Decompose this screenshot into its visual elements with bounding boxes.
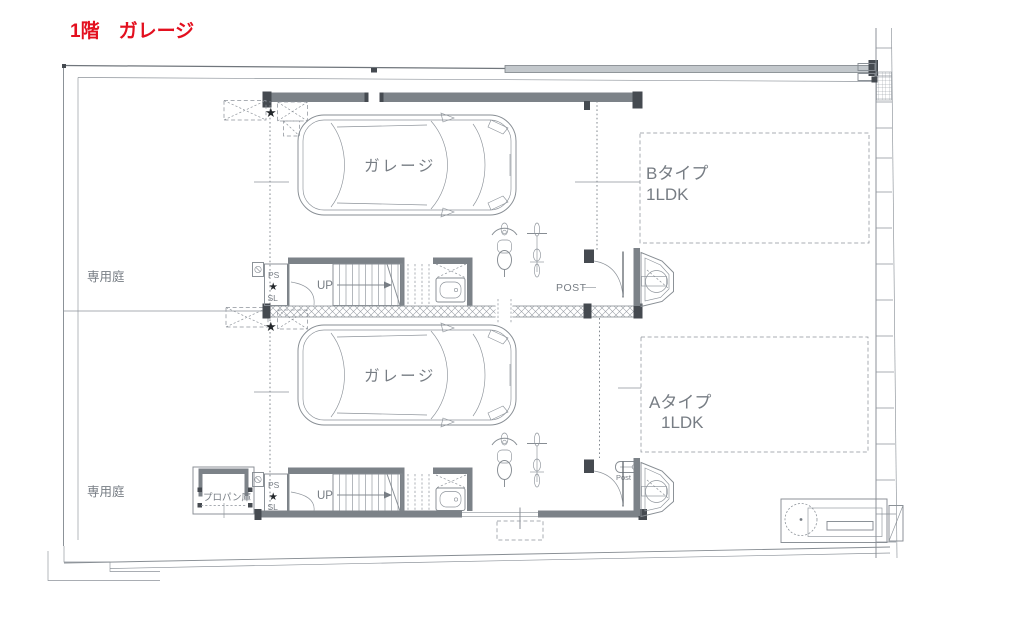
unit-a-type-label: Aタイプ [649,393,711,412]
propane-storage: プロパン庫 [193,467,254,518]
floor-plan-page: 1階 ガレージ [0,0,1024,642]
floor-plan-drawing: 1階 ガレージ [0,0,1024,642]
unit-b-type-label: Bタイプ [646,164,708,183]
room-outline-b: Bタイプ 1LDK [640,133,869,243]
unit-b-core: PS ★ SL UP [253,258,473,306]
garden-label-lower: 専用庭 [87,484,125,499]
up-label-b: UP [317,280,333,292]
room-outline-a: Aタイプ 1LDK [641,337,868,452]
east-fence [858,28,897,558]
party-wall [263,299,643,323]
unit-a-south-wall [255,508,648,541]
unit-a-core: PS ★ SL UP [253,468,473,513]
sl-label-b: SL [268,293,279,303]
up-label-a: UP [317,490,333,502]
shutter-marker-b: ★ [224,101,308,137]
unit-b-layout-label: 1LDK [646,185,689,204]
garage-top-wall [263,92,643,111]
star-symbol: ★ [265,106,277,121]
garage-label-b: ガレージ [364,157,436,175]
unit-b-entry: POST [556,248,674,307]
scooter-bicycle-a [492,433,547,487]
scooter-bicycle-b [492,223,547,277]
post-label-b: POST [556,282,587,294]
planter-box [781,499,903,543]
north-fence-bar [505,60,878,76]
star-symbol: ★ [269,281,278,293]
ps-label-b: PS [268,270,280,280]
star-symbol: ★ [265,320,277,335]
garage-label-a: ガレージ [364,367,436,385]
ps-label-a: PS [268,480,280,490]
unit-a-layout-label: 1LDK [661,413,704,432]
post-label-a: Post [616,473,632,482]
unit-a-entry: Post [584,458,674,517]
page-title: 1階 ガレージ [70,20,194,42]
propane-label: プロパン庫 [203,492,251,504]
garden-label-upper: 専用庭 [87,269,125,284]
